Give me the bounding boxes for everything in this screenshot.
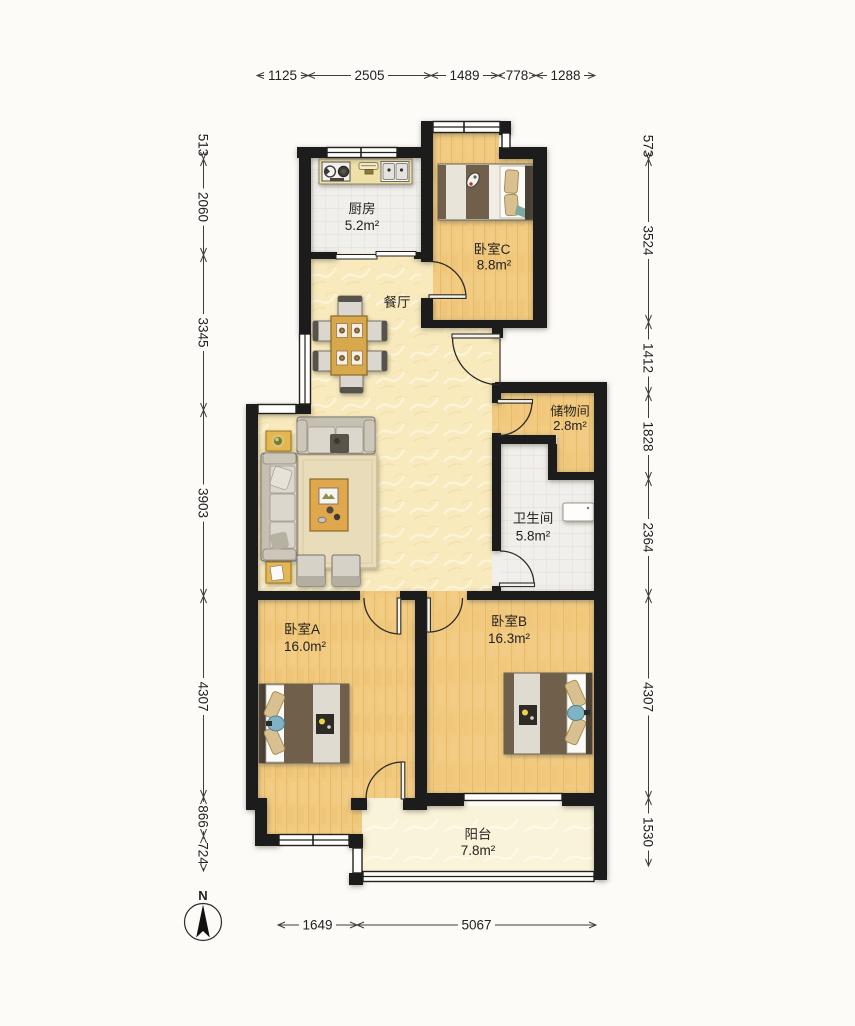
svg-text:1412: 1412 — [641, 343, 656, 373]
svg-text:4307: 4307 — [196, 681, 211, 711]
svg-text:573: 573 — [641, 135, 656, 158]
svg-text:3903: 3903 — [196, 488, 211, 518]
svg-text:1125: 1125 — [268, 68, 297, 83]
svg-text:1288: 1288 — [550, 68, 580, 83]
svg-text:3524: 3524 — [641, 225, 656, 256]
svg-text:3345: 3345 — [196, 317, 211, 347]
svg-text:1649: 1649 — [302, 917, 332, 932]
svg-text:8.8m²: 8.8m² — [477, 257, 512, 272]
svg-text:4307: 4307 — [641, 682, 656, 712]
svg-text:1828: 1828 — [641, 421, 656, 451]
svg-text:866: 866 — [196, 805, 211, 828]
svg-text:16.0m²: 16.0m² — [284, 639, 327, 654]
svg-text:2060: 2060 — [196, 192, 211, 222]
svg-text:1489: 1489 — [449, 68, 479, 83]
svg-text:5.8m²: 5.8m² — [516, 528, 551, 543]
svg-text:7.8m²: 7.8m² — [461, 843, 496, 858]
svg-text:A: A — [311, 622, 320, 637]
svg-text:1530: 1530 — [641, 817, 656, 847]
svg-text:724: 724 — [196, 842, 211, 865]
svg-text:5.2m²: 5.2m² — [345, 218, 380, 233]
svg-text:C: C — [501, 242, 511, 257]
svg-text:2.8m²: 2.8m² — [553, 418, 587, 433]
svg-text:N: N — [198, 888, 207, 903]
svg-text:5067: 5067 — [461, 917, 491, 932]
svg-text:16.3m²: 16.3m² — [488, 631, 531, 646]
svg-text:2505: 2505 — [354, 68, 384, 83]
svg-text:513: 513 — [196, 134, 211, 157]
svg-text:2364: 2364 — [641, 522, 656, 553]
svg-text:778: 778 — [506, 68, 529, 83]
svg-text:B: B — [518, 614, 527, 629]
